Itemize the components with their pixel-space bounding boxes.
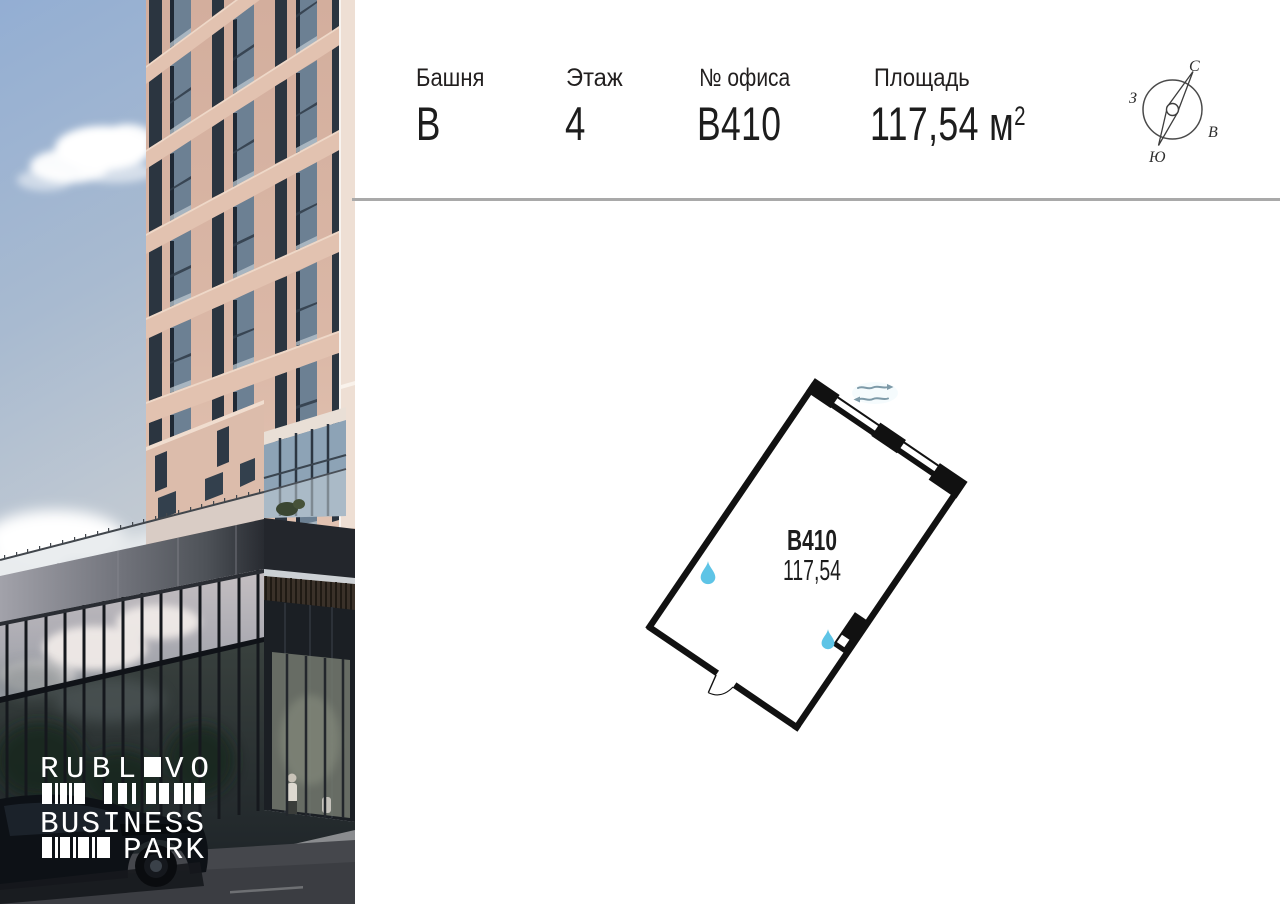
svg-text:RUBLE: RUBLE — [40, 752, 162, 787]
svg-text:В: В — [1208, 124, 1218, 141]
svg-text:Ю: Ю — [1148, 149, 1166, 166]
svg-text:С: С — [1189, 58, 1200, 75]
svg-text:З: З — [1129, 90, 1137, 107]
svg-text:PARK: PARK — [123, 833, 204, 868]
